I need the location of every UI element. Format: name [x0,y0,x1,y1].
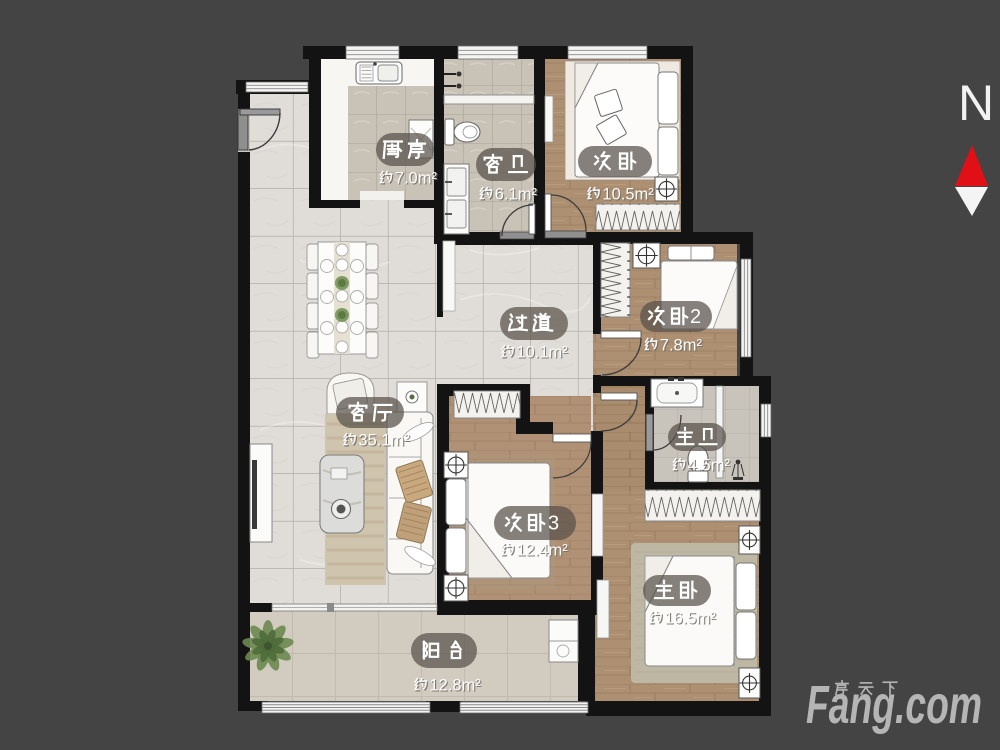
svg-text:7.0m²: 7.0m² [395,170,438,188]
svg-text:10.1m²: 10.1m² [516,344,568,362]
svg-text:6.1m²: 6.1m² [495,186,538,204]
svg-text:16.5m²: 16.5m² [664,610,716,628]
svg-text:35.1m²: 35.1m² [358,432,410,450]
svg-text:N: N [958,75,994,131]
svg-text:12.4m²: 12.4m² [516,542,568,560]
svg-text:12.8m²: 12.8m² [429,677,481,695]
svg-text:3: 3 [548,513,559,535]
svg-text:7.8m²: 7.8m² [660,337,703,355]
svg-text:2: 2 [690,306,701,328]
svg-text:10.5m²: 10.5m² [602,186,654,204]
svg-text:Fang.com: Fang.com [806,675,982,735]
svg-text:4.5m²: 4.5m² [688,457,731,475]
